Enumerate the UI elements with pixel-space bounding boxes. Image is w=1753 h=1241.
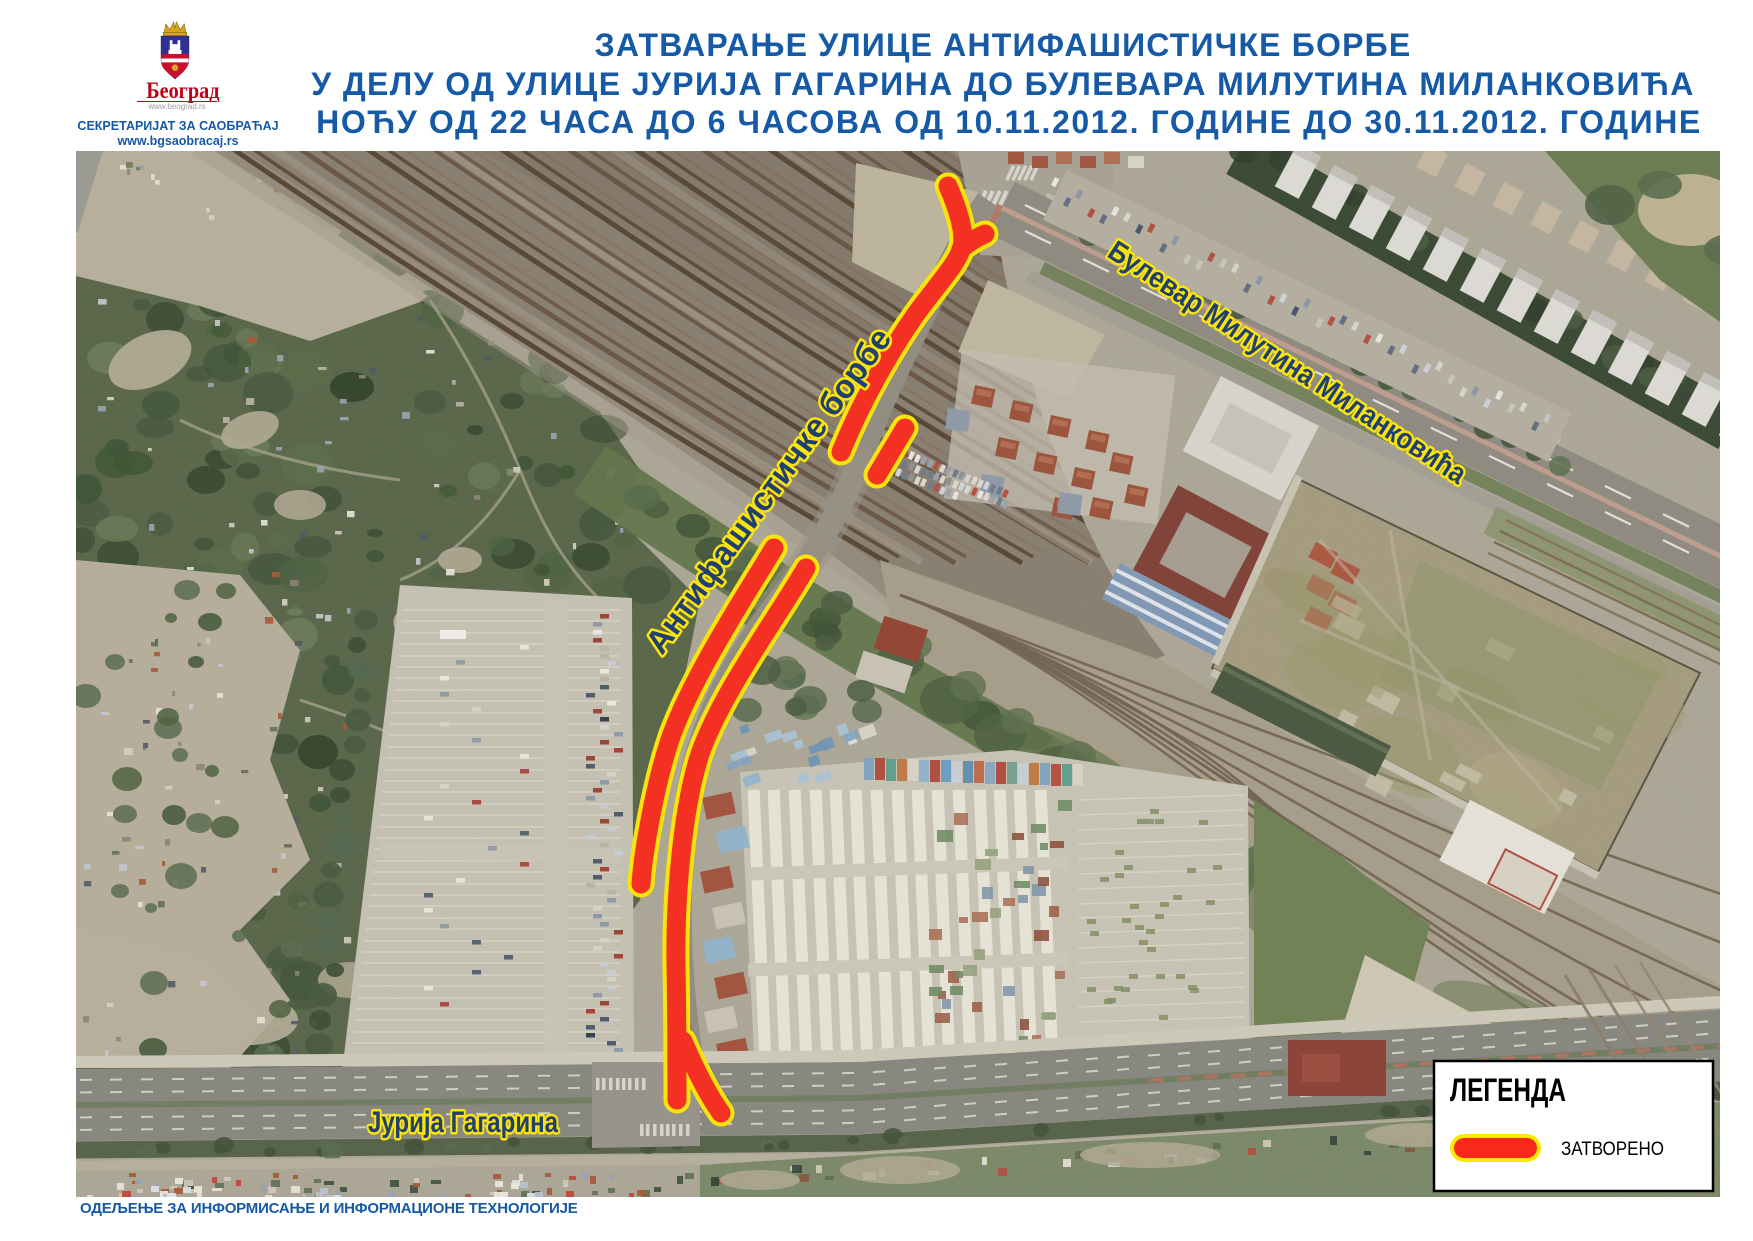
svg-text:ЛЕГЕНДА: ЛЕГЕНДА (1450, 1072, 1566, 1108)
svg-text:ЗАТВОРЕНО: ЗАТВОРЕНО (1561, 1139, 1664, 1160)
